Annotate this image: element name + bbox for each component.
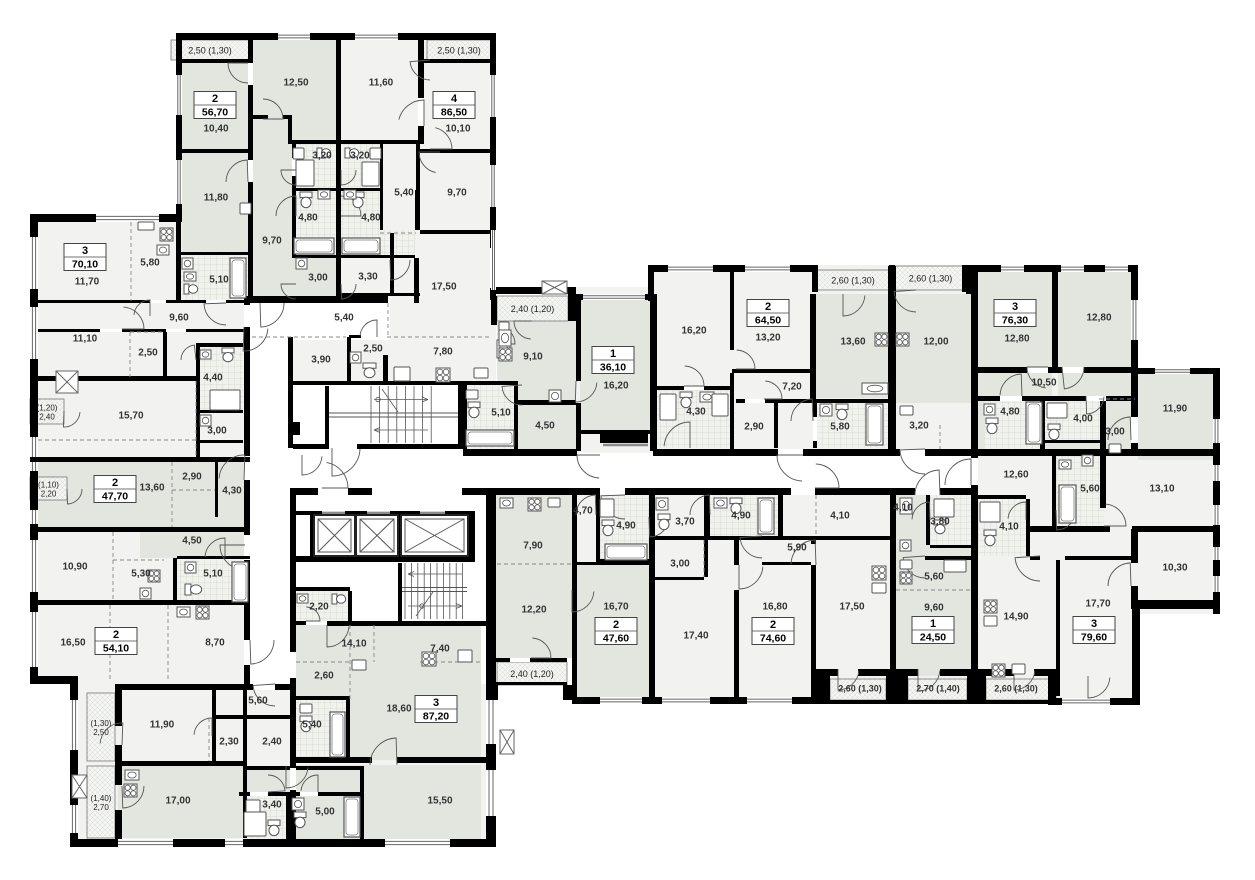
svg-text:11,10: 11,10	[73, 334, 98, 345]
svg-text:3,70: 3,70	[675, 517, 695, 528]
svg-text:9,60: 9,60	[169, 313, 189, 324]
svg-text:3: 3	[82, 245, 88, 257]
svg-text:13,60: 13,60	[840, 337, 865, 348]
svg-text:5,80: 5,80	[140, 258, 160, 269]
svg-text:2,70 (1,40): 2,70 (1,40)	[916, 684, 960, 694]
svg-text:12,20: 12,20	[521, 605, 546, 616]
svg-text:17,40: 17,40	[683, 631, 708, 642]
svg-text:12,80: 12,80	[1086, 313, 1111, 324]
svg-text:7,20: 7,20	[782, 382, 802, 393]
svg-text:2,40 (1,20): 2,40 (1,20)	[510, 669, 554, 679]
svg-text:2,70: 2,70	[93, 803, 109, 812]
svg-text:47,70: 47,70	[102, 491, 128, 503]
svg-text:11,90: 11,90	[150, 720, 175, 731]
svg-text:2,50 (1,30): 2,50 (1,30)	[437, 46, 481, 56]
svg-text:54,10: 54,10	[103, 643, 129, 655]
svg-text:2,90: 2,90	[744, 422, 764, 433]
svg-text:5,60: 5,60	[1080, 484, 1100, 495]
svg-text:86,50: 86,50	[441, 107, 467, 119]
svg-text:4,70: 4,70	[573, 506, 593, 517]
svg-text:4,50: 4,50	[535, 421, 555, 432]
svg-text:56,70: 56,70	[202, 107, 228, 119]
svg-text:13,20: 13,20	[755, 333, 780, 344]
svg-text:15,70: 15,70	[118, 411, 143, 422]
svg-text:2,60 (1,30): 2,60 (1,30)	[838, 684, 882, 694]
svg-text:5,40: 5,40	[394, 188, 414, 199]
svg-text:10,50: 10,50	[1031, 378, 1056, 389]
svg-text:11,60: 11,60	[369, 78, 394, 89]
svg-text:5,60: 5,60	[248, 696, 268, 707]
svg-text:16,20: 16,20	[603, 381, 628, 392]
svg-text:2,50: 2,50	[363, 344, 383, 355]
svg-text:11,70: 11,70	[75, 277, 100, 288]
svg-text:17,70: 17,70	[1085, 599, 1110, 610]
svg-text:1: 1	[930, 618, 936, 630]
svg-text:3,00: 3,00	[207, 426, 227, 437]
svg-text:3: 3	[433, 697, 439, 709]
svg-text:16,70: 16,70	[603, 602, 628, 613]
svg-text:3,20: 3,20	[909, 421, 929, 432]
svg-text:11,90: 11,90	[1163, 404, 1188, 415]
svg-text:3,00: 3,00	[1105, 427, 1125, 438]
svg-text:17,50: 17,50	[839, 602, 864, 613]
svg-text:3: 3	[1012, 301, 1018, 313]
svg-text:5,10: 5,10	[209, 275, 229, 286]
svg-text:9,70: 9,70	[447, 188, 467, 199]
svg-text:4,10: 4,10	[999, 522, 1019, 533]
svg-text:3,40: 3,40	[262, 800, 282, 811]
svg-text:2,60 (1,30): 2,60 (1,30)	[831, 276, 875, 286]
svg-text:7,90: 7,90	[523, 541, 543, 552]
svg-text:5,40: 5,40	[302, 720, 322, 731]
svg-text:64,50: 64,50	[755, 315, 781, 327]
svg-text:11,80: 11,80	[204, 193, 229, 204]
svg-text:5,30: 5,30	[131, 569, 151, 580]
svg-text:3,20: 3,20	[312, 151, 332, 162]
svg-text:18,60: 18,60	[386, 704, 411, 715]
svg-text:2,60 (1,30): 2,60 (1,30)	[994, 684, 1038, 694]
svg-text:2,60: 2,60	[314, 671, 334, 682]
svg-text:36,10: 36,10	[600, 362, 626, 374]
svg-text:2,90: 2,90	[182, 472, 202, 483]
svg-text:4,80: 4,80	[361, 213, 381, 224]
svg-text:47,60: 47,60	[603, 633, 629, 645]
svg-text:12,80: 12,80	[1004, 334, 1029, 345]
svg-text:3,00: 3,00	[670, 559, 690, 570]
svg-text:2,50 (1,30): 2,50 (1,30)	[188, 46, 232, 56]
svg-text:2: 2	[212, 93, 218, 105]
svg-text:76,30: 76,30	[1002, 315, 1028, 327]
svg-text:10,30: 10,30	[1162, 563, 1187, 574]
svg-text:3,30: 3,30	[358, 272, 378, 283]
svg-text:5,90: 5,90	[787, 543, 807, 554]
svg-text:4,10: 4,10	[830, 511, 850, 522]
svg-text:4,00: 4,00	[1073, 414, 1093, 425]
svg-text:10,90: 10,90	[62, 562, 87, 573]
svg-text:10,40: 10,40	[203, 124, 228, 135]
svg-text:16,80: 16,80	[762, 602, 787, 613]
svg-text:3,90: 3,90	[311, 355, 331, 366]
svg-text:3,00: 3,00	[308, 273, 328, 284]
svg-text:5,10: 5,10	[491, 408, 511, 419]
svg-text:2,40 (1,20): 2,40 (1,20)	[511, 304, 555, 314]
svg-text:(1,30): (1,30)	[91, 719, 112, 728]
svg-text:5,00: 5,00	[315, 807, 335, 818]
svg-text:12,00: 12,00	[923, 337, 948, 348]
svg-text:9,60: 9,60	[924, 603, 944, 614]
svg-text:2,20: 2,20	[41, 490, 57, 499]
svg-text:16,50: 16,50	[60, 638, 85, 649]
svg-text:2: 2	[770, 619, 776, 631]
svg-text:7,40: 7,40	[430, 644, 450, 655]
svg-text:3,20: 3,20	[350, 151, 370, 162]
svg-text:3,80: 3,80	[930, 517, 950, 528]
svg-text:14,90: 14,90	[1003, 612, 1028, 623]
svg-text:74,60: 74,60	[760, 633, 786, 645]
svg-text:2,30: 2,30	[219, 737, 239, 748]
svg-text:24,50: 24,50	[920, 632, 946, 644]
svg-text:3: 3	[1091, 618, 1097, 630]
svg-text:2: 2	[613, 619, 619, 631]
svg-text:4,90: 4,90	[616, 521, 636, 532]
svg-text:17,00: 17,00	[165, 796, 190, 807]
svg-text:14,10: 14,10	[341, 639, 366, 650]
svg-text:70,10: 70,10	[72, 259, 98, 271]
svg-text:2,20: 2,20	[309, 602, 329, 613]
svg-text:17,50: 17,50	[431, 282, 456, 293]
svg-text:(1,10): (1,10)	[38, 481, 59, 490]
svg-text:5,40: 5,40	[334, 313, 354, 324]
svg-text:2: 2	[112, 477, 118, 489]
svg-text:9,10: 9,10	[523, 352, 543, 363]
svg-text:16,20: 16,20	[681, 326, 706, 337]
svg-text:1: 1	[610, 348, 616, 360]
svg-text:9,70: 9,70	[262, 236, 282, 247]
svg-text:2: 2	[765, 301, 771, 313]
svg-text:13,10: 13,10	[1149, 484, 1174, 495]
svg-text:12,60: 12,60	[1003, 470, 1028, 481]
svg-text:8,70: 8,70	[205, 638, 225, 649]
svg-text:4,80: 4,80	[1000, 407, 1020, 418]
svg-text:2: 2	[113, 629, 119, 641]
svg-text:4,10: 4,10	[893, 503, 913, 514]
svg-text:2,60 (1,30): 2,60 (1,30)	[909, 274, 953, 284]
svg-text:79,60: 79,60	[1081, 632, 1107, 644]
svg-text:5,10: 5,10	[203, 569, 223, 580]
svg-text:5,60: 5,60	[924, 572, 944, 583]
svg-text:4,30: 4,30	[222, 486, 242, 497]
svg-text:13,60: 13,60	[139, 483, 164, 494]
svg-text:5,80: 5,80	[830, 422, 850, 433]
svg-text:7,80: 7,80	[433, 347, 453, 358]
svg-text:4,30: 4,30	[686, 407, 706, 418]
svg-text:2,50: 2,50	[138, 348, 158, 359]
svg-text:4,90: 4,90	[731, 511, 751, 522]
svg-text:2,40: 2,40	[39, 413, 55, 422]
svg-text:15,50: 15,50	[427, 796, 452, 807]
svg-text:12,50: 12,50	[283, 78, 308, 89]
svg-text:(1,20): (1,20)	[37, 404, 58, 413]
svg-text:4,80: 4,80	[298, 213, 318, 224]
svg-text:87,20: 87,20	[423, 711, 449, 723]
svg-text:4,40: 4,40	[203, 373, 223, 384]
svg-text:2,40: 2,40	[262, 737, 282, 748]
svg-text:4,50: 4,50	[182, 536, 202, 547]
svg-text:(1,40): (1,40)	[91, 794, 112, 803]
svg-text:10,10: 10,10	[445, 124, 470, 135]
svg-text:4: 4	[451, 93, 458, 105]
